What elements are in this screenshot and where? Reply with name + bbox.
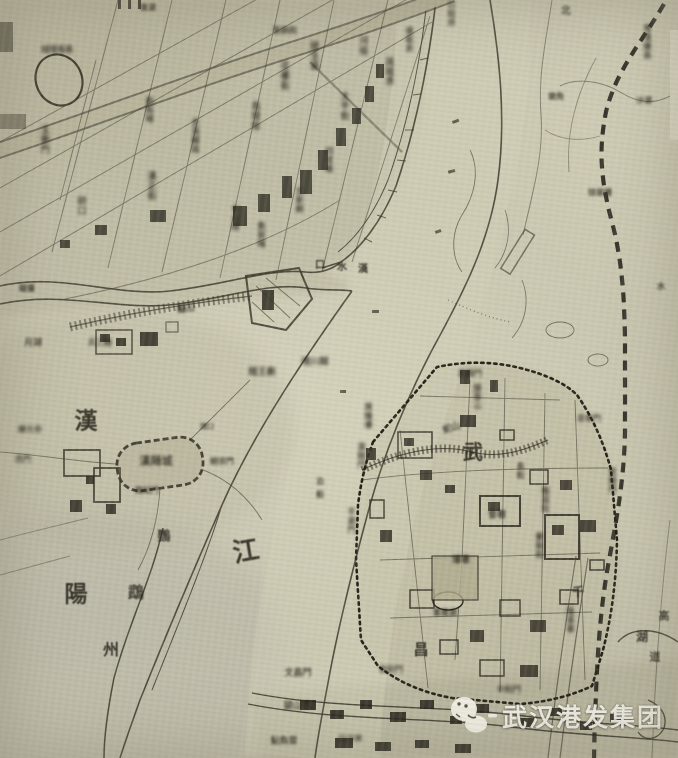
map-label: 船 (316, 490, 324, 498)
map-label: 南紀門 (135, 486, 159, 494)
map-label: 賓陽門 (609, 468, 617, 495)
map-label: 蘭陵街 (536, 533, 544, 560)
map-label: 英租界 (384, 57, 393, 87)
map-label: 昌 (413, 643, 428, 658)
map-label: 河街 (358, 36, 367, 56)
map-label: 江 (231, 537, 261, 567)
map-label: 城環馬路 (41, 45, 73, 53)
map-label: 陽 (65, 583, 88, 606)
map-label: 礮臺 (19, 284, 35, 292)
map-label: 跑馬場 (146, 97, 154, 124)
map-label: 硚口 (76, 196, 85, 216)
map-label: 文昌門 (284, 670, 311, 679)
map-label: 歆生路 (309, 41, 318, 71)
map-label: 漢陽城 (140, 456, 173, 467)
map-label: 漢陽門 (358, 443, 366, 470)
map-label: 督署 (488, 512, 506, 521)
map-label: 州 (103, 642, 119, 658)
map-label: 塩道署 (567, 607, 575, 634)
map-label: 糧道街 (542, 487, 550, 514)
map-label: 長街 (517, 462, 525, 480)
map-label: 兵工廠 (88, 338, 112, 346)
map-label: 武 (463, 442, 483, 462)
map-label: 長堤街 (250, 101, 259, 131)
map-label: 平湖門 (348, 508, 356, 535)
map-label-layer: 漢陽州鵡鸚江武昌口水漢千高湖道北水沙湖塘角城環馬路玉帶門跑馬場京漢鐵路硚口漢正街… (0, 0, 678, 758)
historical-map-image: 漢陽州鵡鸚江武昌口水漢千高湖道北水沙湖塘角城環馬路玉帶門跑馬場京漢鐵路硚口漢正街… (0, 0, 678, 758)
map-label: 保安門 (379, 665, 403, 673)
map-label: 鸚 (157, 531, 170, 544)
map-label: 湖 (636, 631, 648, 643)
map-label: 龍王廟 (248, 369, 275, 378)
map-label: 白沙洲 (338, 734, 362, 742)
map-label: 日租界 (448, 1, 456, 28)
map-label: 漢正街 (146, 171, 155, 201)
map-label: 鵡 (128, 585, 144, 601)
map-label: 四官殿 (326, 147, 334, 174)
map-label: 後湖 (140, 3, 156, 11)
map-label: 塘角 (548, 92, 564, 100)
map-label: 西門 (15, 455, 31, 463)
map-label: 中和門 (497, 685, 521, 693)
map-label: 水 (656, 284, 665, 293)
map-label: 望山門 (283, 703, 310, 712)
map-label: 沈家廟 (296, 187, 304, 214)
map-label: 月湖 (24, 340, 42, 349)
map-label: 製銕局 (273, 26, 297, 34)
map-label: 紫陽湖 (433, 608, 457, 616)
map-label: 晴川閣 (301, 359, 328, 368)
map-label: 花樓街 (279, 61, 288, 91)
map-label: 漢 (75, 410, 98, 433)
map-label: 粵漢鐵路 (644, 24, 652, 60)
map-label: 中山路 (232, 205, 240, 232)
map-label: 龜山 (176, 304, 195, 315)
map-label: 集家嘴 (258, 222, 266, 249)
map-label: 道 (650, 652, 661, 663)
map-label: 渡口 (200, 423, 214, 430)
map-label: 鮎魚套 (270, 738, 297, 747)
map-label: 沙湖 (636, 96, 652, 104)
map-label: 歸元寺 (18, 425, 42, 433)
map-label: 口 (315, 261, 325, 271)
map-label: 武勝門 (458, 369, 482, 377)
map-label: 水 (337, 263, 347, 273)
map-label: 俄租界 (406, 27, 414, 54)
map-label: 漢 (358, 265, 368, 275)
map-label: 北 (561, 7, 571, 17)
map-label: 徐家棚 (588, 188, 612, 196)
map-label: 朝宗門 (210, 457, 234, 465)
map-label: 泊 (316, 477, 324, 485)
map-label: 太平街 (339, 91, 348, 121)
map-label: 高 (659, 611, 670, 622)
map-label: 忠孝門 (577, 414, 601, 422)
map-label: 黃鶴樓 (365, 403, 373, 430)
map-label: 藩署 (452, 557, 470, 566)
map-label: 胭脂山 (474, 384, 482, 411)
map-label: 京漢鐵路 (192, 118, 200, 154)
map-label: 千 (572, 586, 584, 598)
map-label: 玉帶門 (39, 125, 48, 155)
map-label: 蛇山 (442, 422, 462, 436)
